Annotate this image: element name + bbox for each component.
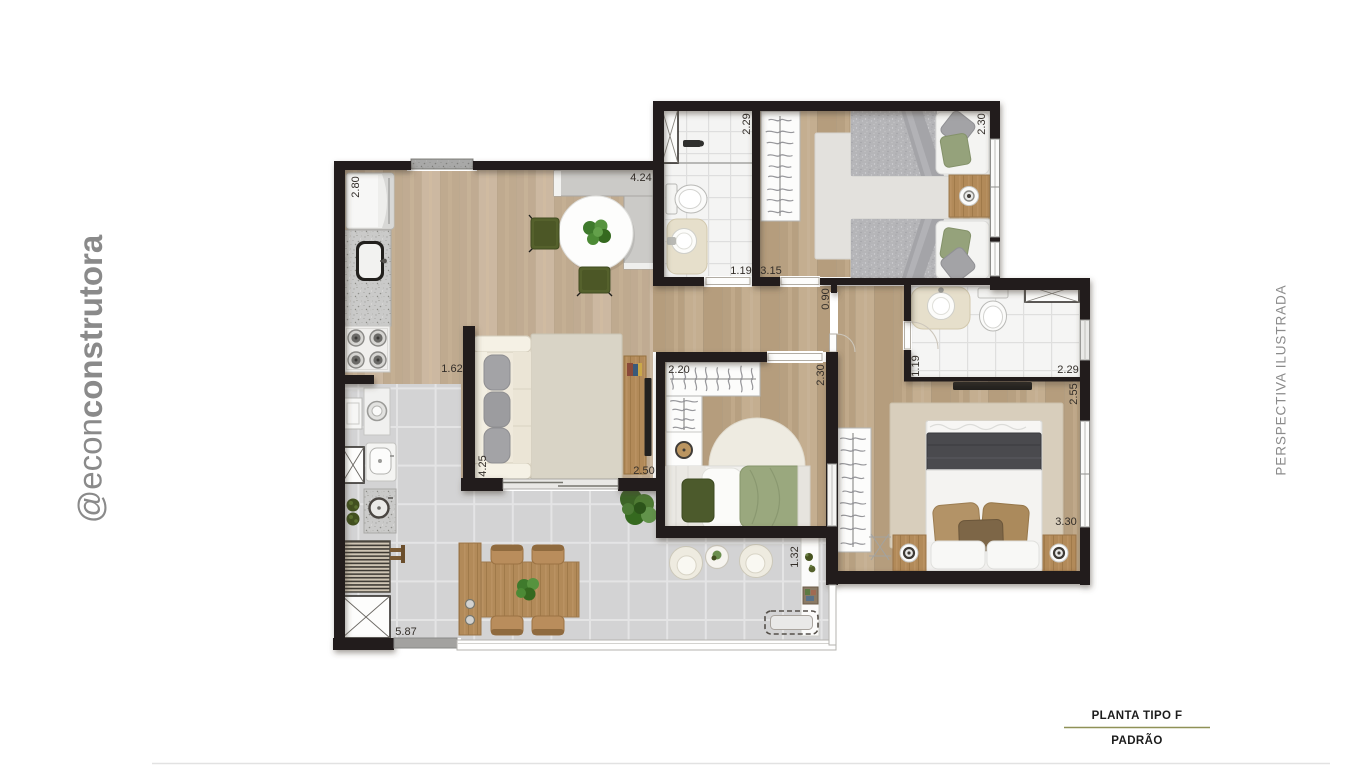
svg-text:5.87: 5.87 (395, 626, 416, 638)
svg-text:1.19: 1.19 (910, 355, 922, 376)
svg-text:3.30: 3.30 (1055, 516, 1076, 528)
svg-text:PLANTA TIPO F: PLANTA TIPO F (1092, 710, 1183, 722)
svg-text:1.19: 1.19 (730, 265, 751, 277)
svg-text:2.55: 2.55 (1068, 383, 1080, 404)
svg-text:2.30: 2.30 (976, 113, 988, 134)
svg-text:2.29: 2.29 (1057, 364, 1078, 376)
svg-text:@econconstrutora: @econconstrutora (72, 234, 109, 523)
svg-text:PADRÃO: PADRÃO (1111, 734, 1162, 747)
svg-text:4.25: 4.25 (477, 455, 489, 476)
svg-text:2.29: 2.29 (741, 113, 753, 134)
svg-text:1.62: 1.62 (441, 363, 462, 375)
svg-text:1.32: 1.32 (789, 546, 801, 567)
svg-text:0.90: 0.90 (820, 288, 832, 309)
svg-text:2.50: 2.50 (633, 465, 654, 477)
svg-text:2.20: 2.20 (668, 364, 689, 376)
svg-text:PERSPECTIVA ILUSTRADA: PERSPECTIVA ILUSTRADA (1274, 284, 1289, 475)
svg-text:2.80: 2.80 (350, 176, 362, 197)
svg-text:3.15: 3.15 (760, 265, 781, 277)
svg-text:2.30: 2.30 (815, 364, 827, 385)
svg-text:4.24: 4.24 (630, 172, 651, 184)
